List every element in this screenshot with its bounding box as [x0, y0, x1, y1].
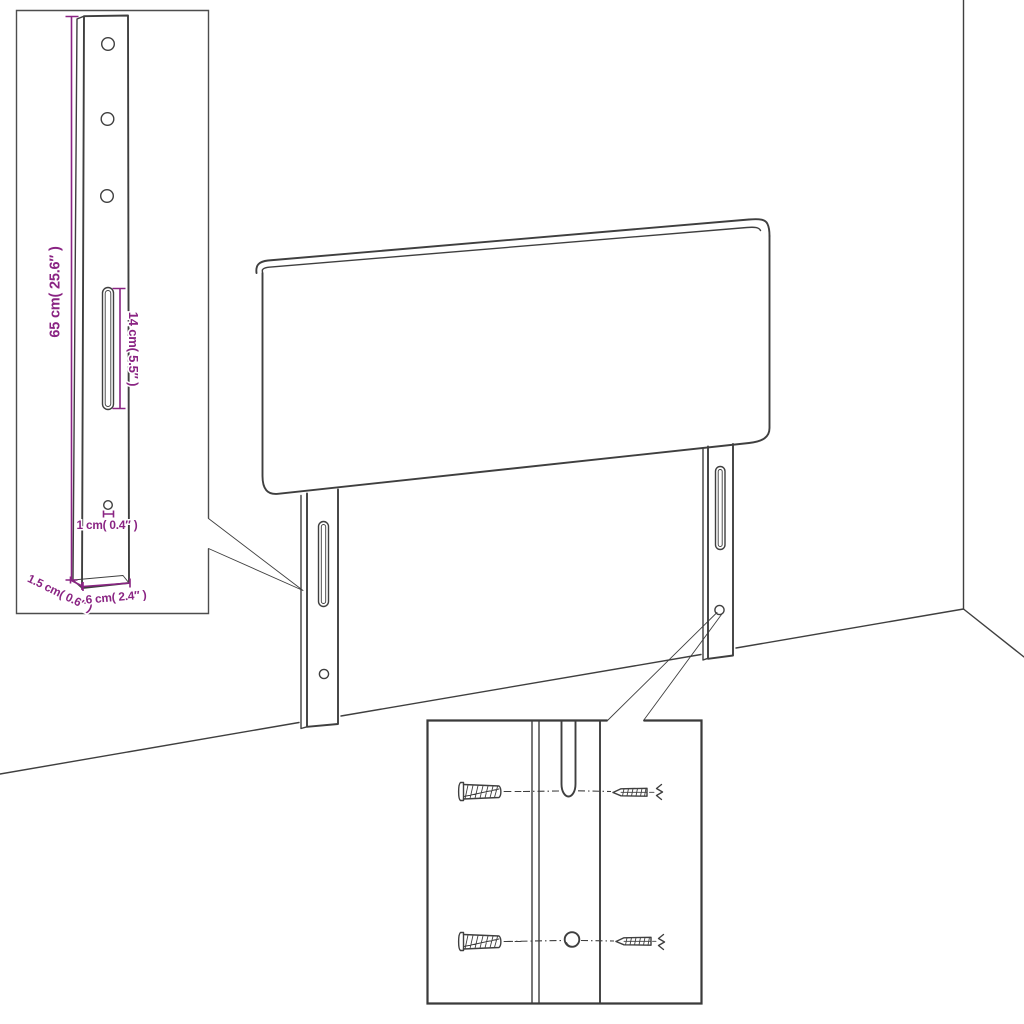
floor-edge-left	[0, 609, 964, 774]
detail-strip	[532, 721, 600, 1003]
right-leg-front-face	[708, 444, 733, 659]
room-corner	[0, 0, 1024, 774]
leg-detail-box: 65 cm( 25.6″ ) 14 cm( 5.5″ ) 1 cm( 0.4″ …	[17, 11, 304, 615]
leg-detail-callout-lines	[209, 519, 304, 591]
left-leg-slot	[319, 522, 329, 607]
screw-bottom	[616, 935, 665, 950]
floor-edge-right	[964, 609, 1024, 657]
headboard-top-edge-inner	[262, 227, 760, 272]
dimension-label-slot: 14 cm( 5.5″ )	[126, 312, 141, 386]
alignment-line-bottom	[506, 941, 614, 942]
screw-top-break-squiggle	[657, 785, 663, 800]
dimension-line-hole	[104, 511, 114, 518]
detail-leg-slot	[103, 288, 114, 410]
screw-bottom-threads	[624, 937, 651, 945]
diagram-canvas: 65 cm( 25.6″ ) 14 cm( 5.5″ ) 1 cm( 0.4″ …	[0, 0, 1024, 1024]
headboard-top-edge-outer	[256, 219, 769, 273]
wall-plug-top-flange	[459, 783, 464, 801]
detail-leg-hole-1	[102, 38, 115, 51]
detail-strip-hole	[565, 932, 580, 947]
detail-strip-slot	[562, 721, 576, 797]
anchor-detail-box	[428, 613, 722, 1004]
screw-top	[613, 785, 663, 800]
right-leg	[703, 444, 733, 660]
screw-top-threads	[621, 788, 647, 796]
wall-plug-bottom-body	[464, 935, 501, 950]
right-leg-slot	[716, 467, 726, 550]
right-leg-slot-inner	[718, 470, 722, 547]
dimension-label-width: 6 cm( 2.4″ )	[85, 587, 147, 606]
headboard-assembly-diagram: 65 cm( 25.6″ ) 14 cm( 5.5″ ) 1 cm( 0.4″ …	[0, 0, 1024, 1024]
anchor-detail-box-border	[428, 721, 702, 1004]
wall-plug-bottom-threads	[464, 935, 499, 949]
detail-leg-slot-inner	[105, 291, 111, 407]
dimension-label-height: 65 cm( 25.6″ )	[48, 246, 64, 338]
left-leg	[301, 490, 338, 729]
screw-bottom-break-squiggle	[659, 935, 665, 950]
wall-plug-top	[459, 783, 521, 801]
dimension-label-hole: 1 cm( 0.4″ )	[77, 518, 138, 532]
detail-leg-hole-3	[101, 190, 114, 203]
wall-plug-top-body	[464, 785, 501, 800]
left-leg-slot-inner	[321, 525, 325, 604]
left-leg-hole	[319, 669, 328, 678]
headboard-panel-outline	[263, 236, 770, 494]
anchor-detail-callout-lines	[608, 613, 722, 721]
detail-leg-hole-2	[101, 113, 114, 126]
headboard-panel	[256, 219, 769, 494]
detail-leg-screw-holes	[101, 38, 115, 203]
alignment-line-top	[523, 791, 611, 792]
wall-plug-bottom-flange	[459, 933, 464, 951]
dimension-line-slot	[113, 289, 126, 409]
detail-leg-small-hole	[104, 501, 113, 510]
wall-plug-top-threads	[464, 785, 499, 799]
